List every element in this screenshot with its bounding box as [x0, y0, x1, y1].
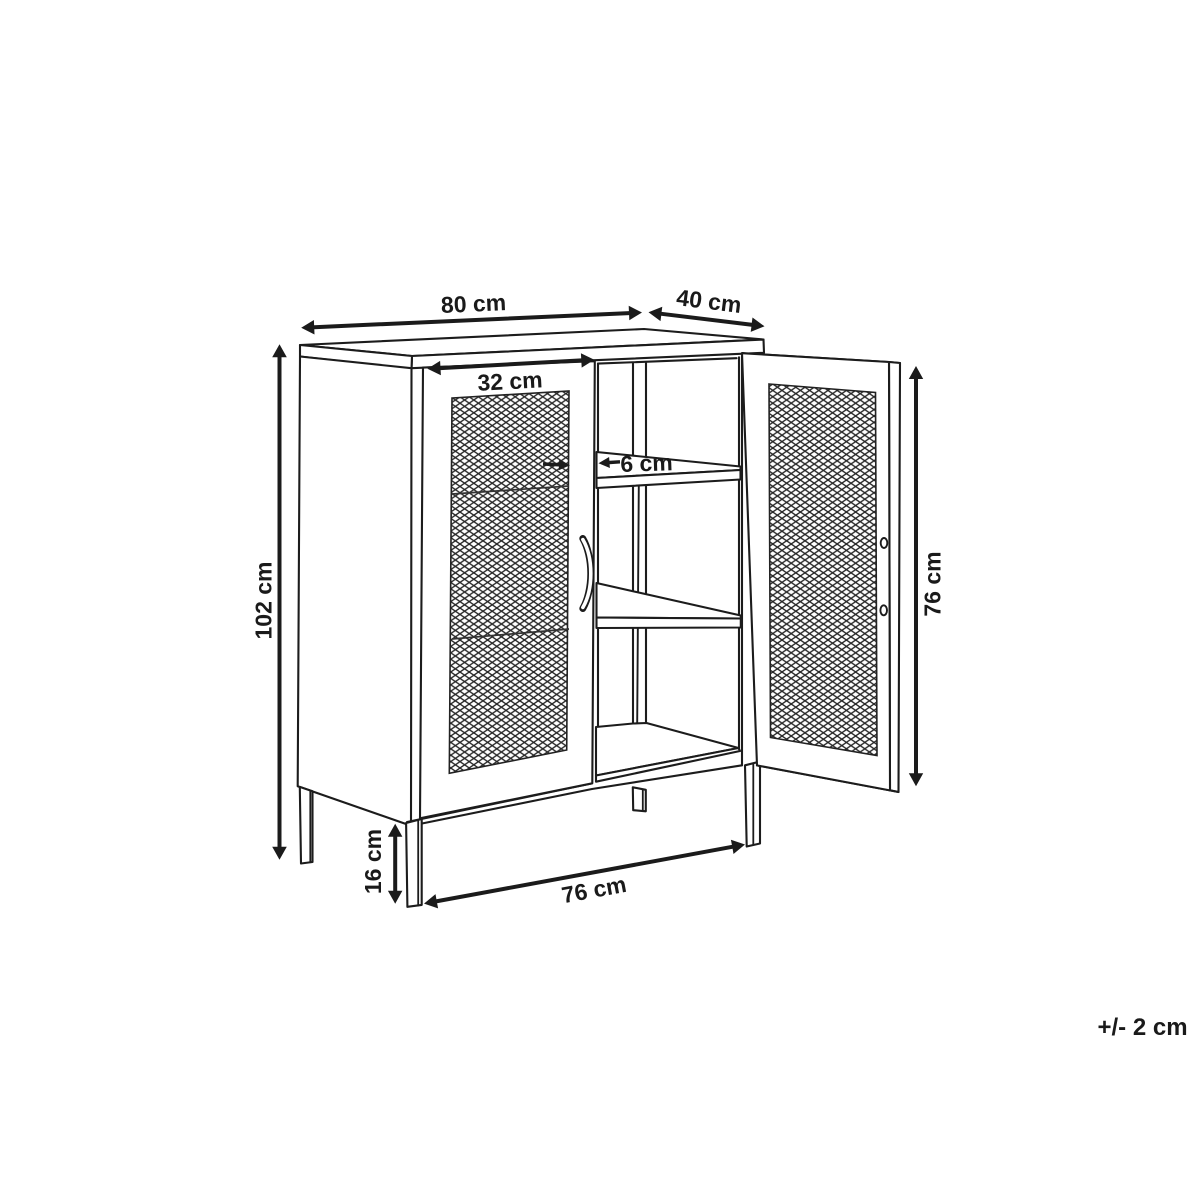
svg-text:76 cm: 76 cm: [920, 551, 946, 616]
svg-text:102 cm: 102 cm: [251, 561, 277, 639]
svg-text:+/- 2 cm: +/- 2 cm: [1097, 1014, 1187, 1041]
svg-text:32 cm: 32 cm: [477, 366, 543, 395]
svg-text:80 cm: 80 cm: [440, 289, 506, 318]
svg-text:6 cm: 6 cm: [620, 449, 673, 477]
svg-text:16 cm: 16 cm: [360, 829, 386, 894]
